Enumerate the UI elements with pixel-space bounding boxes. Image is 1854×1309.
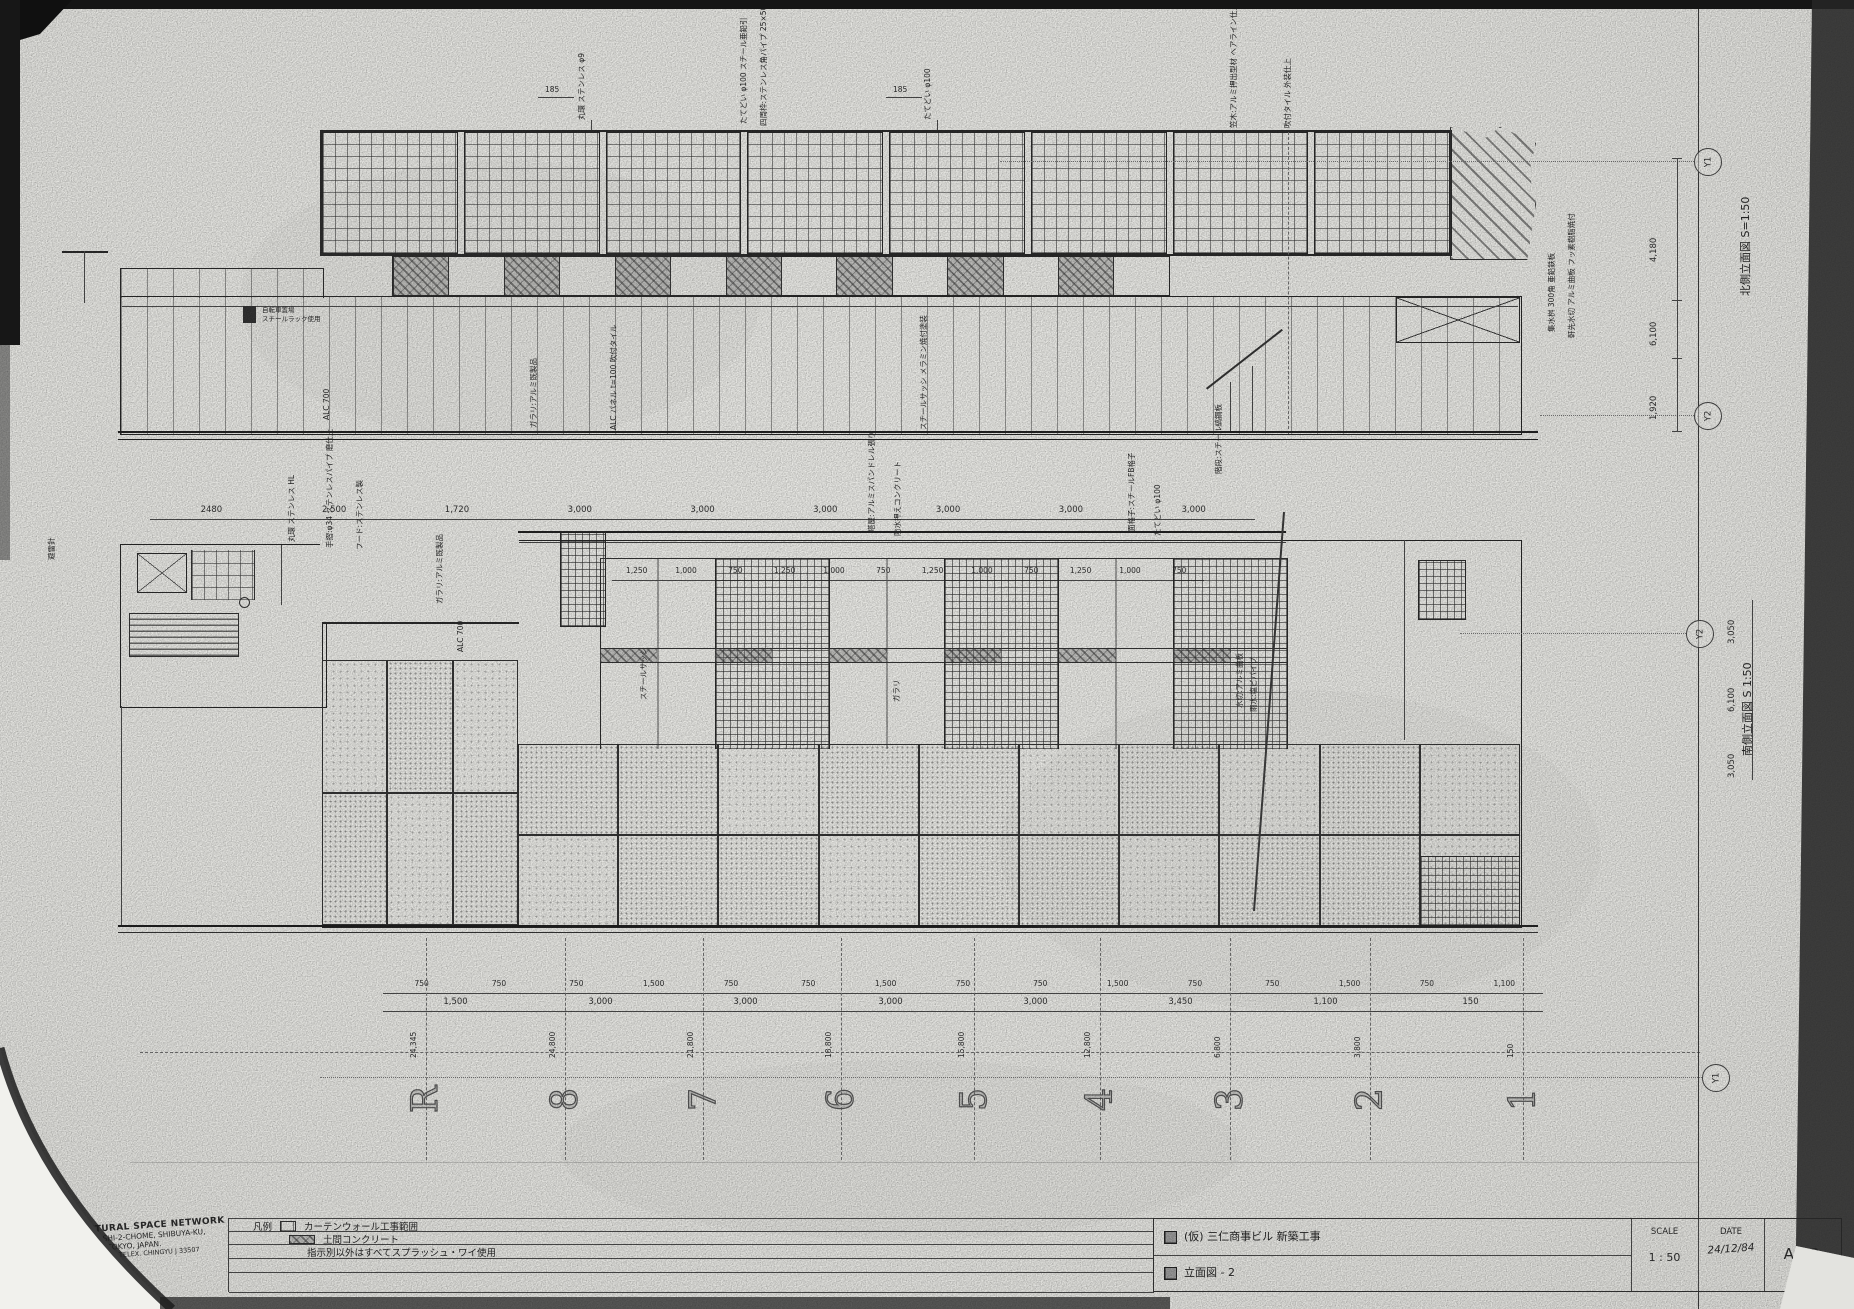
dim-value: 750: [538, 979, 615, 988]
south-callout: 雨水:塩ビパイプ: [1248, 657, 1260, 712]
mesh-panel: [1314, 132, 1450, 254]
panel-cell: [819, 744, 919, 835]
scale-label: SCALE: [1631, 1227, 1698, 1237]
panel-cell: [781, 257, 836, 295]
mesh-panel: [464, 132, 600, 254]
north-callout: 笠木:アルミ押出型材 ヘアライン仕上: [1228, 3, 1240, 128]
dim-value: 3,000: [528, 997, 673, 1007]
south-callout: 水切:アルミ曲板: [1234, 653, 1246, 708]
scanned-elevation-sheet: 丸環 ステンレス φ9 たてどい φ100 スチール亜鉛引 四周枠:ステンレス角…: [0, 0, 1854, 1309]
circle-fitting: [239, 597, 250, 608]
vdim-tick: [1672, 158, 1682, 159]
dim-value: 3,000: [963, 997, 1108, 1007]
mesh-panel: [606, 132, 742, 254]
sheet-icon: [1164, 1267, 1177, 1280]
panel-cell: [453, 793, 518, 926]
datum-line: [1540, 415, 1694, 416]
vdim-label: 4,180: [1648, 238, 1660, 262]
north-dim-row: 2480 2,500 1,720 3,000 3,000 3,000 3,000…: [150, 505, 1255, 515]
datum-line: [320, 1077, 1702, 1078]
panel-cell: [919, 744, 1019, 835]
vdim-line: [1677, 158, 1678, 432]
mullion: [281, 545, 282, 605]
vdim-tick: [1672, 358, 1682, 359]
mullion: [1404, 540, 1405, 740]
grid-line-6: [841, 938, 842, 1160]
dim-value: 3,000: [641, 505, 764, 515]
north-view-title: 北側立面図 S=1:50: [1740, 197, 1752, 296]
grid-label-8: 8: [547, 1076, 583, 1122]
north-callout: ALC パネル t=100 吹付タイル: [608, 325, 620, 430]
note: スチールラック使用: [262, 313, 321, 323]
dim-value: 1,500: [1079, 979, 1156, 988]
vdim-label: 6,100: [1726, 688, 1738, 712]
mesh-panel: [191, 550, 255, 600]
grid-offset: 6,800: [1212, 1037, 1224, 1058]
dim-value: 750: [1234, 979, 1311, 988]
spandrel-band: [392, 256, 1170, 296]
sheet-title: 立面図 - 2: [1184, 1264, 1235, 1280]
vdim-label: 6,100: [1648, 322, 1660, 346]
south-dim-row-2: 1,500 3,000 3,000 3,000 3,000 3,450 1,10…: [383, 997, 1543, 1007]
cell-divider: [1154, 1255, 1631, 1256]
louver-panel: [129, 613, 239, 657]
south-callout: ガラリ: [891, 680, 903, 703]
mesh-panel: [322, 132, 458, 254]
curtain-wall-band: [320, 130, 1452, 256]
date-value: 24/12/84: [1698, 1241, 1765, 1258]
x-brace-panel: [137, 553, 187, 593]
dim-value: 3,000: [1009, 505, 1132, 515]
mesh-panel: [1031, 132, 1167, 254]
legend-label: 凡例: [253, 1219, 272, 1233]
north-callout: 階段:スチール縞鋼板: [1213, 404, 1225, 474]
dim-value: 750: [1156, 979, 1233, 988]
north-callout: たてどい φ100 スチール亜鉛引: [738, 17, 750, 124]
grid-line-4: [1100, 938, 1101, 1160]
panel-cell: [504, 257, 559, 295]
mesh-panel: [889, 132, 1025, 254]
panel-cell: [1058, 257, 1113, 295]
dim-value: 750: [1388, 979, 1465, 988]
dim-value: 3,000: [818, 997, 963, 1007]
vdim-label: 1,920: [1648, 396, 1660, 420]
dim-label: 185: [893, 85, 907, 94]
grid-bubble-Y1b: Y1: [1702, 1064, 1730, 1092]
south-callout: 塔屋:アルミスパンドレル張り: [866, 432, 878, 532]
dim-line: [538, 97, 574, 98]
company-stamp: ARCHITECTURAL SPACE NETWORK 17-8, HIGASH…: [27, 1215, 241, 1266]
rail-cell: [657, 649, 714, 662]
grid-label-7: 7: [685, 1076, 721, 1122]
north-callout: 吹付タイル 外装仕上: [1282, 58, 1294, 128]
south-callout: 防水押えコンクリート: [892, 461, 904, 536]
pole-arm: [62, 251, 108, 253]
panel-cell: [322, 793, 387, 926]
south-callout: 面格子:スチールFB格子: [1126, 453, 1138, 533]
grid-line-7: [703, 938, 704, 1160]
rail-cell: [772, 649, 829, 662]
north-callout: スチールサッシ メラミン焼付塗装: [918, 315, 930, 430]
panel-cell: [836, 257, 891, 295]
dim-line: [150, 519, 1255, 520]
pole: [84, 251, 85, 303]
legend-row: 凡例 カーテンウォール工事範囲: [253, 1219, 418, 1233]
panel-cell: [919, 835, 1019, 926]
panel-cell: [819, 835, 919, 926]
grid-line-2: [1370, 938, 1371, 1160]
mesh-panel: [747, 132, 883, 254]
grid-bubble-Y2: Y2: [1694, 402, 1722, 430]
grid-offset: 18,800: [823, 1032, 835, 1058]
south-callout: ガラリ:アルミ既製品: [434, 534, 446, 604]
panel-cell: [726, 257, 781, 295]
lower-panel-grid-left: [322, 660, 518, 925]
title-cells: (仮) 三仁商事ビル 新築工事 立面図 - 2 SCALE 1 : 50 DAT…: [1153, 1218, 1842, 1292]
dim-value: 1,500: [847, 979, 924, 988]
dim-value: 750: [770, 979, 847, 988]
panel-cell: [518, 744, 618, 835]
panel-cell: [1219, 835, 1319, 926]
panel-cell: [448, 257, 503, 295]
grid-label-5: 5: [956, 1076, 992, 1122]
dim-value: 3,000: [1132, 505, 1255, 515]
legend-text: カーテンウォール工事範囲: [304, 1219, 418, 1233]
mesh-panel: [1420, 856, 1520, 926]
south-callout: 手摺:φ34 ステンレスパイプ 磨仕上: [324, 429, 336, 548]
rail-cell: [887, 649, 944, 662]
grid-offset: 15,800: [956, 1032, 968, 1058]
meter-box: [243, 306, 256, 323]
grid-line-5: [974, 938, 975, 1160]
north-callout: たてどい φ100: [922, 68, 934, 120]
grid-offset: 3,800: [1352, 1037, 1364, 1058]
grid-label-6: 6: [823, 1076, 859, 1122]
frame-line: [1698, 0, 1699, 1309]
grid-label-2: 2: [1352, 1076, 1388, 1122]
panel-cell: [670, 257, 725, 295]
legend-rule: [229, 1292, 1154, 1293]
sheet-rule: [130, 1162, 1698, 1163]
rail-cell: [715, 649, 772, 662]
grid-line-8: [565, 938, 566, 1160]
dim-value: 750: [924, 979, 1001, 988]
south-callout: たてどい φ100: [1152, 484, 1164, 536]
panel-cell: [892, 257, 947, 295]
panel-cell: [1019, 744, 1119, 835]
panel-cell: [387, 660, 452, 793]
vdim-tick: [1672, 431, 1682, 432]
dim-value: 750: [383, 979, 460, 988]
datum-line: [1000, 161, 1694, 162]
dim-label: 185: [545, 85, 559, 94]
legend-table: 凡例 カーテンウォール工事範囲 土間コンクリート 指示別以外はすべてスプラッシュ…: [228, 1218, 1154, 1292]
date-label: DATE: [1698, 1227, 1764, 1237]
mid-rail: [600, 648, 1288, 663]
dim-value: 150: [1398, 997, 1543, 1007]
grid-bubble-Y2b: Y2: [1686, 620, 1714, 648]
grid-line-R: [426, 938, 427, 1160]
dim-value: 1,500: [615, 979, 692, 988]
grid-line-1: [1523, 938, 1524, 1160]
south-callout: 避雷針: [46, 538, 58, 561]
panel-cell: [393, 257, 448, 295]
north-callout: 丸環 ステンレス φ9: [576, 53, 588, 120]
north-callout: 四周枠:ステンレス角パイプ 25×50: [758, 6, 770, 126]
project-icon: [1164, 1231, 1177, 1244]
panel-cell: [559, 257, 614, 295]
dim-value: 2480: [150, 505, 273, 515]
south-dim-row-1: 750 750 750 1,500 750 750 1,500 750 750 …: [383, 979, 1543, 988]
panel-cell: [1320, 835, 1420, 926]
dim-value: 1,100: [1466, 979, 1543, 988]
south-callout: スチールサッシ: [638, 648, 650, 701]
vdim-label: 3,050: [1726, 620, 1738, 644]
panel-cell: [453, 660, 518, 793]
panel-cell: [387, 793, 452, 926]
tower-edge: [121, 706, 122, 925]
panel-cell: [518, 835, 618, 926]
panel-cell: [1119, 835, 1219, 926]
datum-line: [1460, 633, 1686, 634]
ground-line: [118, 925, 1538, 933]
dim-value: 1,100: [1253, 997, 1398, 1007]
rail-line: [122, 306, 1518, 307]
vdim-line: [1752, 600, 1753, 780]
stair-tower: [120, 544, 327, 708]
grid-offset: 24,345: [408, 1032, 420, 1058]
dim-value: 3,450: [1108, 997, 1253, 1007]
panel-cell: [718, 835, 818, 926]
legend-text: 土間コンクリート: [323, 1232, 399, 1246]
south-callout: 丸環 ステンレス HL: [286, 475, 298, 542]
curtain-wall-hatch-icon: [280, 1221, 296, 1232]
chain-line: [140, 1052, 1700, 1053]
panel-cell: [1320, 744, 1420, 835]
dim-value: 1,500: [1311, 979, 1388, 988]
grid-offset: 21,800: [685, 1032, 697, 1058]
grid-label-3: 3: [1212, 1076, 1248, 1122]
rail-cell: [1059, 649, 1116, 662]
vdim-tick: [1672, 300, 1682, 301]
legend-row: 土間コンクリート: [289, 1232, 399, 1246]
south-callout: ALC 700: [455, 621, 467, 652]
panel-cell: [1003, 257, 1058, 295]
panel-cell: [618, 744, 718, 835]
grid-line-3: [1230, 938, 1231, 1160]
dim-line: [383, 1011, 1543, 1012]
dim-value: 1,720: [396, 505, 519, 515]
sheet-number: A- 8: [1764, 1245, 1841, 1263]
panel-cell: [947, 257, 1002, 295]
grid-offset: 12,800: [1082, 1032, 1094, 1058]
dim-line: [886, 97, 922, 98]
rail-cell: [944, 649, 1001, 662]
grid-offset: 150: [1505, 1044, 1517, 1058]
panel-cell: [1019, 835, 1119, 926]
north-callout: ガラリ:アルミ既製品: [528, 358, 540, 428]
concrete-hatch-icon: [289, 1235, 315, 1244]
dim-value: 3,000: [887, 505, 1010, 515]
north-callout: 集水桝 300角 亜鉛鉄板: [1546, 253, 1558, 332]
panel-cell: [618, 835, 718, 926]
note: ALC 700: [321, 389, 333, 420]
scale-value: 1 : 50: [1631, 1251, 1698, 1264]
panel-cell: [615, 257, 670, 295]
lower-roof-line: [322, 622, 519, 624]
roof-step-mask: [320, 538, 519, 622]
grid-label-1: 1: [1505, 1076, 1541, 1122]
north-callout: 軒先水切 アルミ曲板 フッ素樹脂焼付: [1566, 213, 1578, 338]
grid-dashed-line: [1288, 132, 1289, 434]
dim-value: 3,000: [673, 997, 818, 1007]
grid-bubble-Y1: Y1: [1694, 148, 1722, 176]
panel-cell: [1219, 744, 1319, 835]
stair-line: [1252, 366, 1253, 432]
siding-band-left: [120, 268, 324, 298]
panel-cell: [1119, 744, 1219, 835]
grid-offset: 24,800: [547, 1032, 559, 1058]
panel-cell: [1113, 257, 1168, 295]
rail-cell: [1001, 649, 1058, 662]
legend-rule: [229, 1272, 1154, 1273]
dim-value: 1,500: [383, 997, 528, 1007]
torn-hatch-region: [1450, 127, 1536, 260]
rail-cell: [829, 649, 886, 662]
mesh-panel: [1418, 560, 1466, 620]
panel-cell: [718, 744, 818, 835]
dim-line: [383, 993, 1543, 994]
grid-label-4: 4: [1082, 1076, 1118, 1122]
rail-cell: [1173, 649, 1230, 662]
south-callout: フード:ステンレス製: [354, 480, 366, 550]
grid-label-R: R: [408, 1076, 444, 1122]
panel-cell: [1420, 744, 1520, 835]
project-title: (仮) 三仁商事ビル 新築工事: [1184, 1228, 1321, 1244]
stair-line: [1230, 382, 1231, 432]
panel-cell: [322, 660, 387, 793]
dim-value: 750: [1002, 979, 1079, 988]
dim-value: 3,000: [518, 505, 641, 515]
legend-note: 指示別以外はすべてスプラッシュ・ワイ使用: [307, 1245, 496, 1259]
dim-value: 750: [460, 979, 537, 988]
rail-cell: [1116, 649, 1173, 662]
lower-panel-grid: [518, 744, 1520, 926]
vdim-label: 3,050: [1726, 754, 1738, 778]
